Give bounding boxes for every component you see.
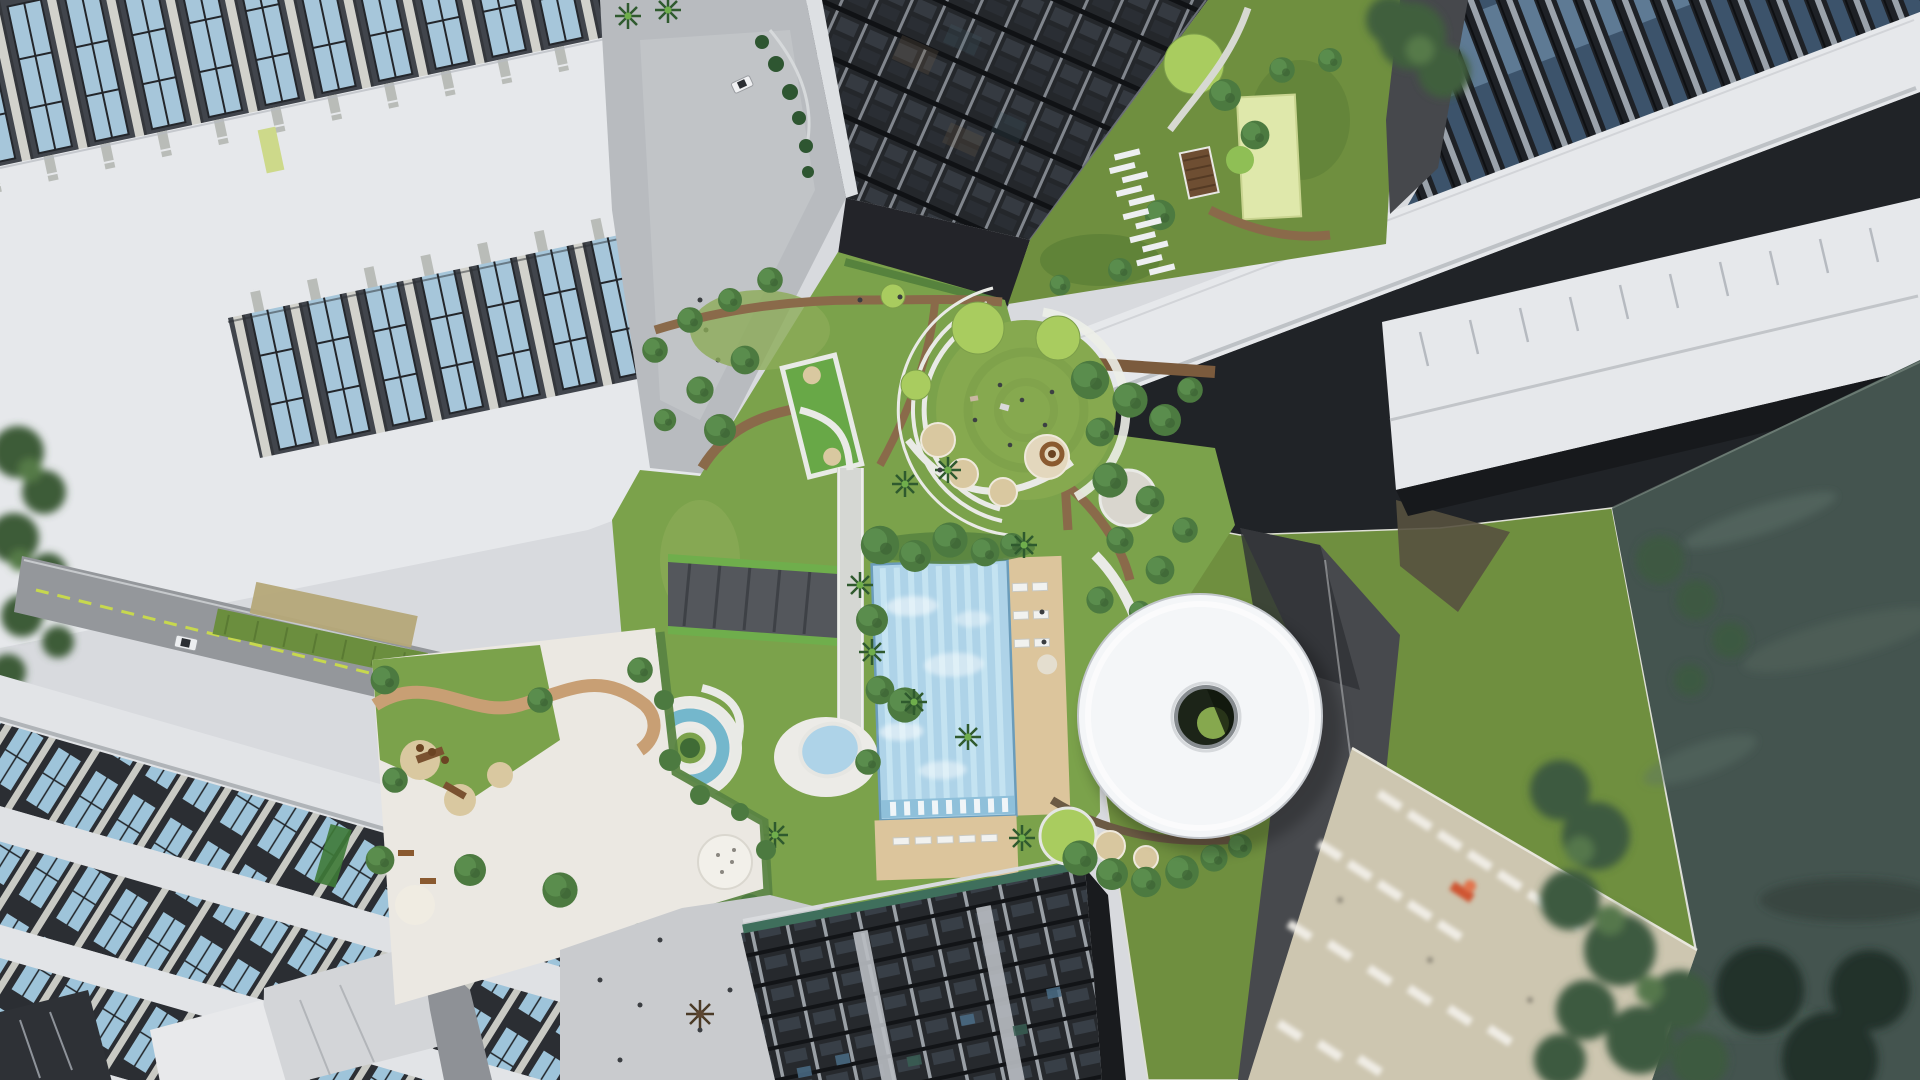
garage-ramp: [668, 554, 838, 646]
aerial-render: [0, 0, 1920, 1080]
aerial-render-page: [0, 0, 1920, 1080]
bench: [398, 850, 414, 856]
seating-pod: [921, 423, 955, 457]
seating-pod: [989, 478, 1017, 506]
play-pad: [698, 835, 752, 889]
